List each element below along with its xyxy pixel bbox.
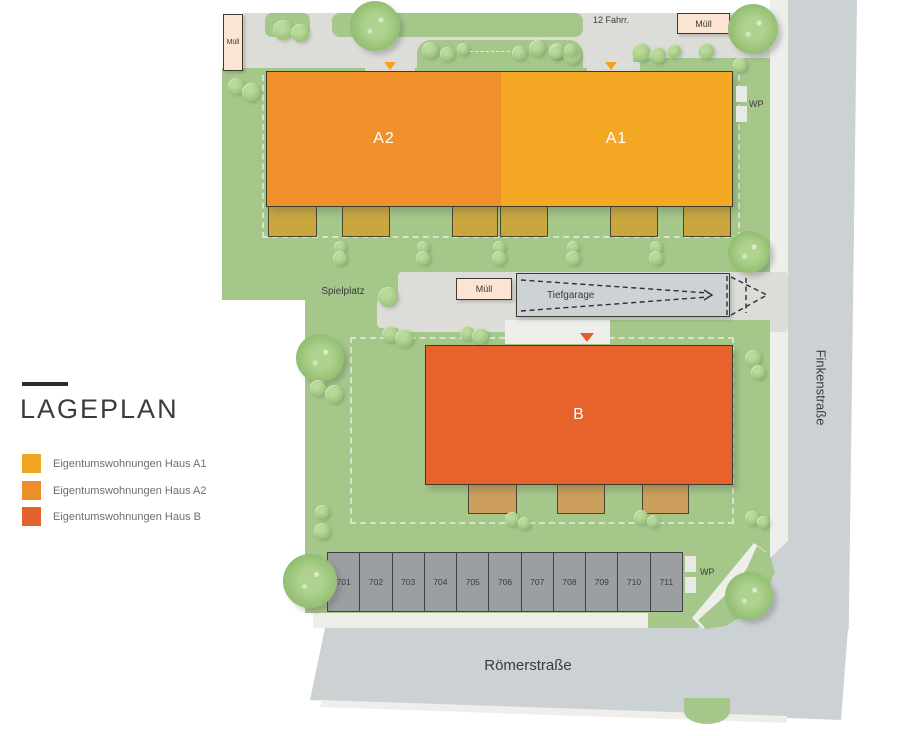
bike-parking-label: 12 Fahrr. xyxy=(580,15,642,25)
legend-swatch-a2-icon xyxy=(22,481,41,500)
bush-icon xyxy=(416,251,430,265)
tree-icon xyxy=(728,231,770,273)
muell-box-top-left: Müll xyxy=(223,14,243,71)
heat-pump-pad xyxy=(736,106,747,122)
bush-icon xyxy=(315,505,329,519)
terrace-b xyxy=(642,480,689,514)
bush-icon xyxy=(422,42,438,58)
bush-icon xyxy=(242,83,260,101)
bush-icon xyxy=(273,20,293,40)
terrace-b xyxy=(557,480,605,514)
entrance-marker-b-icon xyxy=(580,333,594,342)
bush-icon xyxy=(650,47,666,63)
legend-label-a1: Eigentumswohnungen Haus A1 xyxy=(53,458,207,470)
bush-icon xyxy=(647,515,659,527)
bush-icon xyxy=(505,512,519,526)
building-a1-label: A1 xyxy=(606,130,628,148)
bush-icon xyxy=(757,516,769,528)
building-a1: A1 xyxy=(501,72,732,206)
heat-pump-pad xyxy=(736,86,747,102)
parking-stall: 702 xyxy=(360,553,392,611)
tree-icon xyxy=(283,554,337,608)
page-title: LAGEPLAN xyxy=(20,394,179,425)
path-dashes xyxy=(470,51,515,53)
sidewalk-south-upper xyxy=(313,613,648,628)
bush-icon xyxy=(649,251,663,265)
bush-icon xyxy=(698,43,714,59)
legend-swatch-a1-icon xyxy=(22,454,41,473)
wp-top-label: WP xyxy=(749,99,764,109)
street-finkenstrasse xyxy=(788,0,857,630)
playground-label: Spielplatz xyxy=(308,286,378,297)
muell-box-top-right: Müll xyxy=(677,13,730,34)
muell-label: Müll xyxy=(476,284,493,294)
parking-stall: 707 xyxy=(522,553,554,611)
parking-stall: 711 xyxy=(651,553,682,611)
parking-row: 701 702 703 704 705 706 707 708 709 710 … xyxy=(327,552,683,612)
bush-icon xyxy=(314,523,330,539)
tree-icon xyxy=(350,1,400,51)
parking-stall: 710 xyxy=(618,553,650,611)
bush-icon xyxy=(566,251,580,265)
street-label-roemerstrasse: Römerstraße xyxy=(428,657,628,674)
bush-icon xyxy=(529,40,545,56)
green-south-wedge xyxy=(684,698,730,724)
parking-stall: 706 xyxy=(489,553,521,611)
bush-icon xyxy=(733,58,747,72)
bush-icon xyxy=(667,44,681,58)
legend-label-b: Eigentumswohnungen Haus B xyxy=(53,511,201,523)
street-label-finkenstrasse: Finkenstraße xyxy=(780,325,862,450)
bush-icon xyxy=(518,517,530,529)
bush-icon xyxy=(333,251,347,265)
legend-item-a2: Eigentumswohnungen Haus A2 xyxy=(22,481,207,500)
terrace-b xyxy=(468,480,517,514)
legend-accent-line xyxy=(22,382,68,386)
bush-icon xyxy=(310,380,326,396)
tree-icon xyxy=(728,4,778,54)
bush-icon xyxy=(472,328,488,344)
bush-icon xyxy=(440,47,454,61)
heat-pump-pad xyxy=(685,556,696,572)
building-a: A2 A1 xyxy=(266,71,733,207)
site-plan-page: Müll Müll 12 Fahrr. A2 A1 WP Spielplatz … xyxy=(0,0,900,736)
bush-icon xyxy=(751,365,765,379)
bush-icon xyxy=(457,43,469,55)
muell-box-mid: Müll xyxy=(456,278,512,300)
entrance-marker-a2-icon xyxy=(384,62,396,70)
muell-label: Müll xyxy=(227,39,240,46)
bush-icon xyxy=(632,43,650,61)
bush-icon xyxy=(634,510,648,524)
parking-stall: 703 xyxy=(393,553,425,611)
bush-icon xyxy=(378,287,398,307)
bush-icon xyxy=(745,350,761,366)
tree-icon xyxy=(725,572,773,620)
building-a2: A2 xyxy=(267,72,501,206)
parking-stall: 708 xyxy=(554,553,586,611)
muell-label: Müll xyxy=(695,19,712,29)
entrance-marker-a1-icon xyxy=(605,62,617,70)
bush-icon xyxy=(564,44,576,56)
wp-bottom-label: WP xyxy=(700,567,715,577)
legend-label-a2: Eigentumswohnungen Haus A2 xyxy=(53,485,207,497)
building-b: B xyxy=(425,345,733,485)
bush-icon xyxy=(325,385,343,403)
parking-stall: 704 xyxy=(425,553,457,611)
bush-icon xyxy=(512,46,526,60)
tree-icon xyxy=(296,334,344,382)
building-a2-label: A2 xyxy=(373,130,395,148)
legend-item-a1: Eigentumswohnungen Haus A1 xyxy=(22,454,207,473)
legend-swatch-b-icon xyxy=(22,507,41,526)
bush-icon xyxy=(549,45,563,59)
building-b-label: B xyxy=(573,406,585,424)
bush-icon xyxy=(395,329,413,347)
bush-icon xyxy=(492,251,506,265)
parking-stall: 705 xyxy=(457,553,489,611)
heat-pump-pad xyxy=(685,577,696,593)
bush-icon xyxy=(291,24,309,42)
legend-item-b: Eigentumswohnungen Haus B xyxy=(22,507,201,526)
parking-stall: 709 xyxy=(586,553,618,611)
